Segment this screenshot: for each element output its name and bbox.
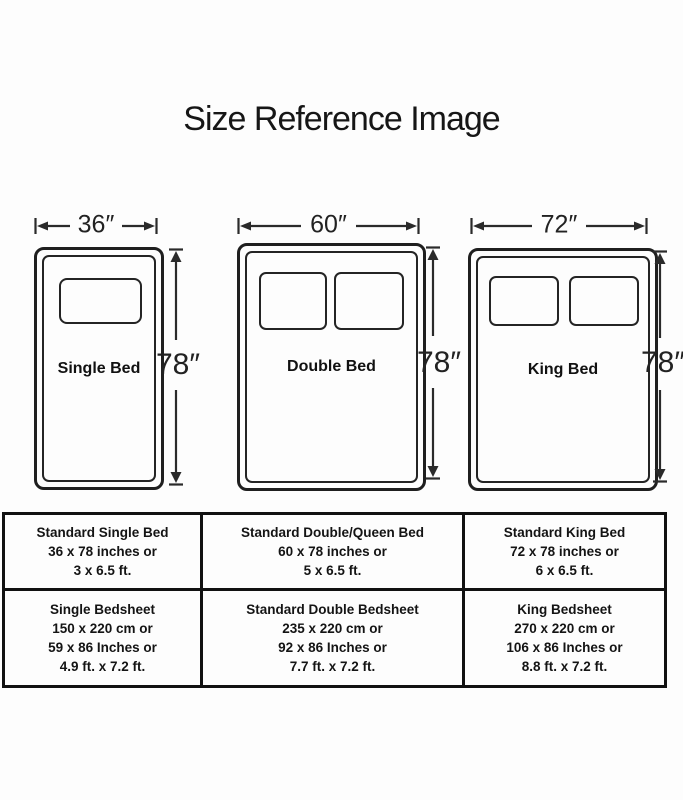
cell-standard-single-bed: Standard Single Bed 36 x 78 inches or 3 … bbox=[5, 515, 200, 588]
king-bed-pillow-right bbox=[569, 276, 639, 326]
table-text: King Bedsheet bbox=[517, 600, 612, 619]
table-text: 235 x 220 cm or bbox=[282, 619, 383, 638]
cell-single-bedsheet: Single Bedsheet 150 x 220 cm or 59 x 86 … bbox=[5, 591, 200, 685]
table-text: Standard Double/Queen Bed bbox=[241, 523, 424, 542]
table-text: Single Bedsheet bbox=[50, 600, 155, 619]
single-bed-label: Single Bed bbox=[37, 360, 161, 378]
size-reference-page: Size Reference Image 36″ Single Bed 78″ bbox=[0, 0, 683, 800]
double-bed-pillow-right bbox=[334, 272, 404, 330]
single-bed-pillow bbox=[59, 278, 142, 324]
table-text: Standard King Bed bbox=[504, 523, 626, 542]
single-bed-diagram: Single Bed bbox=[34, 247, 164, 490]
table-text: 72 x 78 inches or bbox=[510, 542, 619, 561]
king-bed-height-label: 78″ bbox=[641, 347, 683, 379]
table-text: 92 x 86 Inches or bbox=[278, 638, 387, 657]
single-bed-width-label: 36″ bbox=[34, 213, 158, 238]
table-text: 4.9 ft. x 7.2 ft. bbox=[60, 657, 146, 676]
king-bed-label: King Bed bbox=[471, 361, 655, 379]
cell-standard-double-queen-bed: Standard Double/Queen Bed 60 x 78 inches… bbox=[203, 515, 462, 588]
table-text: 150 x 220 cm or bbox=[52, 619, 153, 638]
table-text: 5 x 6.5 ft. bbox=[304, 561, 362, 580]
page-title: Size Reference Image bbox=[0, 100, 683, 139]
double-bed-width-arrow: 60″ bbox=[237, 217, 420, 235]
table-text: 6 x 6.5 ft. bbox=[536, 561, 594, 580]
king-bed-width-label: 72″ bbox=[470, 213, 648, 238]
cell-standard-king-bed: Standard King Bed 72 x 78 inches or 6 x … bbox=[465, 515, 664, 588]
king-bed-diagram: King Bed bbox=[468, 248, 658, 491]
table-text: 36 x 78 inches or bbox=[48, 542, 157, 561]
table-text: 8.8 ft. x 7.2 ft. bbox=[522, 657, 608, 676]
double-bed-height-label: 78″ bbox=[417, 347, 461, 379]
bed-sizes-table: Standard Single Bed 36 x 78 inches or 3 … bbox=[2, 512, 667, 688]
single-bed-width-arrow: 36″ bbox=[34, 217, 158, 235]
double-bed-diagram: Double Bed bbox=[237, 243, 426, 491]
table-text: 60 x 78 inches or bbox=[278, 542, 387, 561]
double-bed-pillow-left bbox=[259, 272, 327, 330]
king-bed-width-arrow: 72″ bbox=[470, 217, 648, 235]
table-text: 3 x 6.5 ft. bbox=[74, 561, 132, 580]
table-text: 59 x 86 Inches or bbox=[48, 638, 157, 657]
table-text: 106 x 86 Inches or bbox=[506, 638, 622, 657]
table-text: 7.7 ft. x 7.2 ft. bbox=[290, 657, 376, 676]
table-text: 270 x 220 cm or bbox=[514, 619, 615, 638]
king-bed-pillow-left bbox=[489, 276, 559, 326]
table-text: Standard Double Bedsheet bbox=[246, 600, 419, 619]
single-bed-height-label: 78″ bbox=[156, 349, 200, 381]
double-bed-width-label: 60″ bbox=[237, 213, 420, 238]
cell-king-bedsheet: King Bedsheet 270 x 220 cm or 106 x 86 I… bbox=[465, 591, 664, 685]
cell-standard-double-bedsheet: Standard Double Bedsheet 235 x 220 cm or… bbox=[203, 591, 462, 685]
double-bed-label: Double Bed bbox=[240, 358, 423, 376]
table-text: Standard Single Bed bbox=[36, 523, 168, 542]
